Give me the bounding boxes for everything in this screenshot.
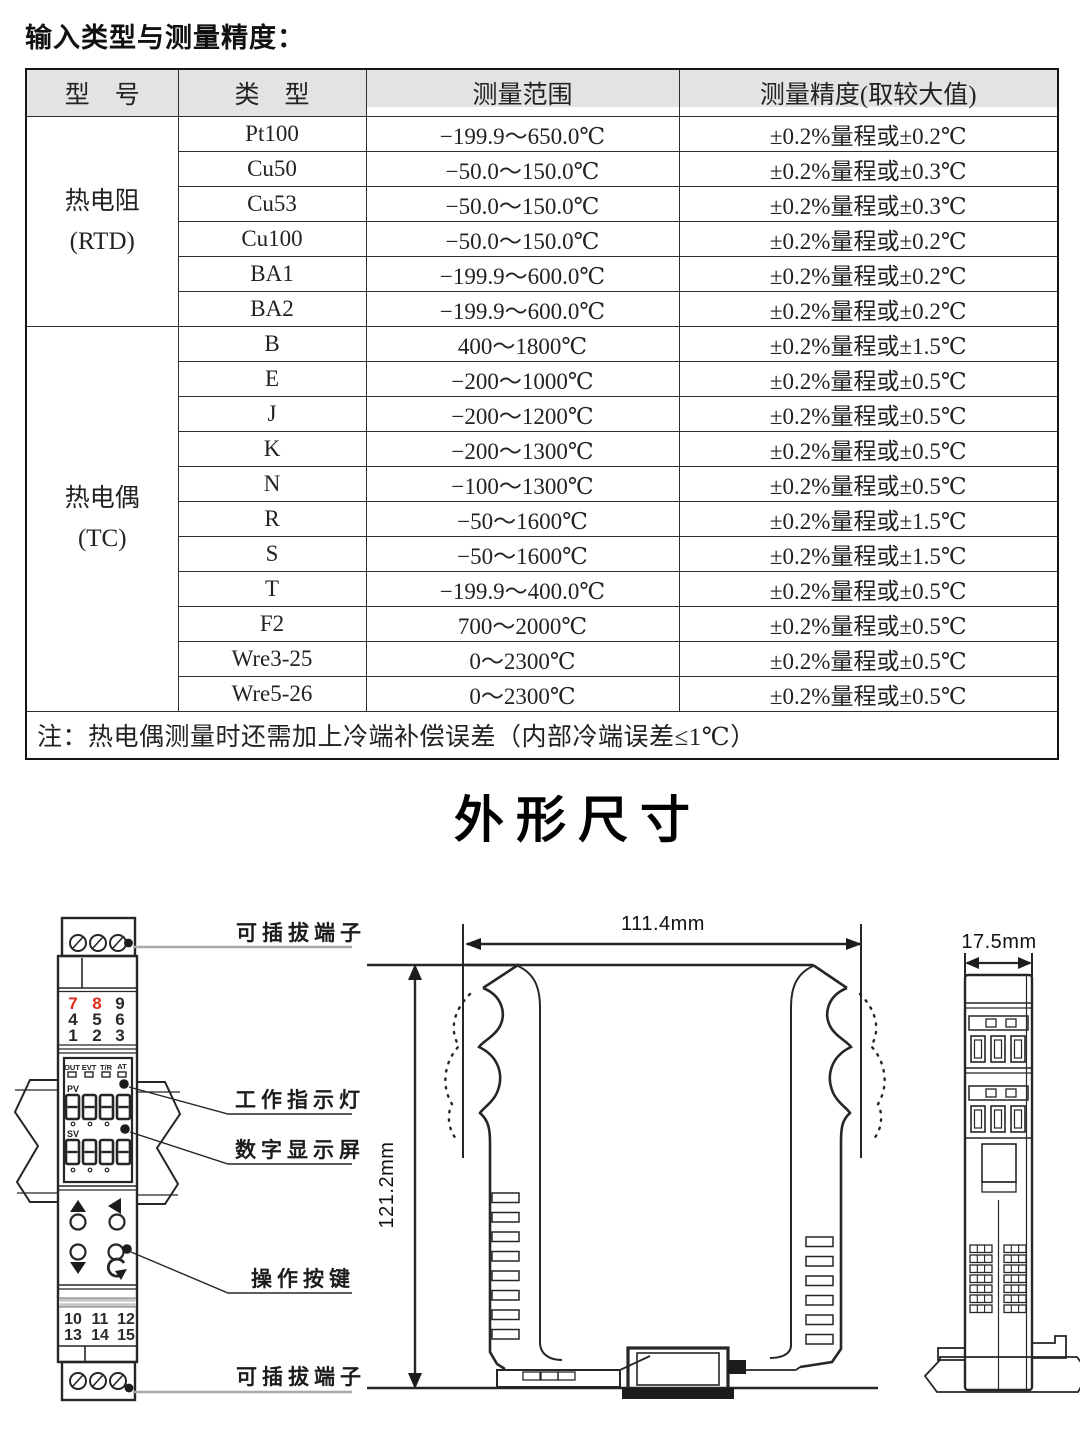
side-view-drawing: 17.5mm bbox=[925, 931, 1080, 1392]
down-button bbox=[71, 1245, 86, 1260]
indicator-label: EVT bbox=[82, 1063, 97, 1072]
accuracy-cell: ±0.2%量程或±0.2℃ bbox=[679, 117, 1058, 152]
table-row: Cu100−50.0～150.0℃±0.2%量程或±0.2℃ bbox=[26, 222, 1058, 257]
accuracy-cell: ±0.2%量程或±0.5℃ bbox=[679, 362, 1058, 397]
terminal-number: 12 bbox=[117, 1311, 135, 1328]
side-terminal-upper bbox=[965, 1016, 1032, 1073]
table-row: Cu50−50.0～150.0℃±0.2%量程或±0.3℃ bbox=[26, 152, 1058, 187]
indicator-lamp bbox=[68, 1072, 76, 1077]
type-cell: R bbox=[178, 502, 366, 537]
range-cell: −100～1300℃ bbox=[366, 467, 679, 502]
indicator-lamp bbox=[102, 1072, 110, 1077]
outline-section-heading: 外形尺寸 bbox=[38, 780, 1080, 852]
outline-drawings: 7 8 9 4 5 6 1 2 3 OUT EVT T/R AT bbox=[0, 900, 1080, 1453]
range-cell: −199.9～650.0℃ bbox=[366, 117, 679, 152]
type-cell: Wre3-25 bbox=[178, 642, 366, 677]
terminal-number: 15 bbox=[117, 1327, 135, 1344]
terminal-number: 11 bbox=[92, 1311, 109, 1328]
callout-top-terminal: 可插拔端子 bbox=[236, 921, 366, 945]
callout-anchor-dot bbox=[124, 939, 133, 948]
din-rail-right bbox=[137, 1082, 180, 1204]
accuracy-cell: ±0.2%量程或±0.5℃ bbox=[679, 677, 1058, 712]
up-button bbox=[71, 1215, 86, 1230]
terminal-number: 2 bbox=[92, 1026, 101, 1045]
page-title: 输入类型与测量精度： bbox=[25, 16, 305, 55]
range-cell: −50.0～150.0℃ bbox=[366, 222, 679, 257]
enter-button bbox=[109, 1245, 124, 1260]
range-cell: −200～1000℃ bbox=[366, 362, 679, 397]
din-rail-left bbox=[15, 1080, 58, 1202]
din-rail-section bbox=[925, 1357, 1080, 1392]
table-row: E−200～1000℃±0.2%量程或±0.5℃ bbox=[26, 362, 1058, 397]
table-row: S−50～1600℃±0.2%量程或±1.5℃ bbox=[26, 537, 1058, 572]
range-cell: −199.9～600.0℃ bbox=[366, 257, 679, 292]
header-model: 型 号 bbox=[26, 69, 178, 117]
type-cell: BA2 bbox=[178, 292, 366, 327]
table-row: Cu53−50.0～150.0℃±0.2%量程或±0.3℃ bbox=[26, 187, 1058, 222]
top-view-drawing: 111.4mm 121.2mm bbox=[367, 913, 885, 1399]
accuracy-cell: ±0.2%量程或±0.2℃ bbox=[679, 292, 1058, 327]
left-arrow-icon bbox=[108, 1198, 121, 1214]
table-note: 注：热电偶测量时还需加上冷端补偿误差（内部冷端误差≤1℃） bbox=[26, 712, 1058, 760]
table-row: BA1−199.9～600.0℃±0.2%量程或±0.2℃ bbox=[26, 257, 1058, 292]
vent-slats-right bbox=[806, 1237, 833, 1344]
spec-table-wrap: 型 号 类 型 测量范围 测量精度(取较大值) 热电阻(RTD)Pt100−19… bbox=[25, 68, 1059, 760]
type-cell: Wre5-26 bbox=[178, 677, 366, 712]
sv-digits bbox=[66, 1140, 130, 1164]
accuracy-cell: ±0.2%量程或±0.2℃ bbox=[679, 257, 1058, 292]
accuracy-cell: ±0.2%量程或±0.5℃ bbox=[679, 467, 1058, 502]
left-button bbox=[110, 1215, 125, 1230]
table-row: 热电偶(TC)B400～1800℃±0.2%量程或±1.5℃ bbox=[26, 327, 1058, 362]
terminal-number: 13 bbox=[64, 1327, 82, 1344]
range-cell: −50.0～150.0℃ bbox=[366, 152, 679, 187]
type-cell: Cu50 bbox=[178, 152, 366, 187]
swing-arc-dotted bbox=[860, 994, 885, 1141]
header-accuracy: 测量精度(取较大值) bbox=[679, 69, 1058, 117]
terminal-number: 3 bbox=[115, 1026, 124, 1045]
range-cell: 400～1800℃ bbox=[366, 327, 679, 362]
top-terminal-block bbox=[62, 918, 135, 956]
type-cell: Cu100 bbox=[178, 222, 366, 257]
front-view-drawing: 7 8 9 4 5 6 1 2 3 OUT EVT T/R AT bbox=[15, 918, 366, 1400]
range-cell: −50～1600℃ bbox=[366, 502, 679, 537]
range-cell: −200～1300℃ bbox=[366, 432, 679, 467]
range-cell: −200～1200℃ bbox=[366, 397, 679, 432]
accuracy-cell: ±0.2%量程或±1.5℃ bbox=[679, 502, 1058, 537]
button-panel bbox=[58, 1186, 137, 1289]
table-row: T−199.9～400.0℃±0.2%量程或±0.5℃ bbox=[26, 572, 1058, 607]
table-row: BA2−199.9～600.0℃±0.2%量程或±0.2℃ bbox=[26, 292, 1058, 327]
table-row: N−100～1300℃±0.2%量程或±0.5℃ bbox=[26, 467, 1058, 502]
spec-table-body: 热电阻(RTD)Pt100−199.9～650.0℃±0.2%量程或±0.2℃C… bbox=[26, 117, 1058, 760]
range-cell: −50.0～150.0℃ bbox=[366, 187, 679, 222]
right-clip-profile bbox=[800, 988, 851, 1367]
table-row: K−200～1300℃±0.2%量程或±0.5℃ bbox=[26, 432, 1058, 467]
terminal-number: 1 bbox=[68, 1026, 77, 1045]
table-row: J−200～1200℃±0.2%量程或±0.5℃ bbox=[26, 397, 1058, 432]
accuracy-cell: ±0.2%量程或±0.5℃ bbox=[679, 642, 1058, 677]
swing-arc-dotted bbox=[445, 994, 470, 1141]
indicator-lamp bbox=[118, 1072, 126, 1077]
terminal-number: 10 bbox=[64, 1311, 82, 1328]
callout-bottom-terminal: 可插拔端子 bbox=[236, 1365, 366, 1389]
type-cell: N bbox=[178, 467, 366, 502]
accuracy-cell: ±0.2%量程或±0.2℃ bbox=[679, 222, 1058, 257]
down-arrow-icon bbox=[70, 1262, 86, 1274]
indicator-label: T/R bbox=[100, 1063, 113, 1072]
callout-display: 数字显示屏 bbox=[235, 1138, 365, 1162]
accuracy-cell: ±0.2%量程或±1.5℃ bbox=[679, 327, 1058, 362]
table-row: 热电阻(RTD)Pt100−199.9～650.0℃±0.2%量程或±0.2℃ bbox=[26, 117, 1058, 152]
range-cell: 700～2000℃ bbox=[366, 607, 679, 642]
type-cell: K bbox=[178, 432, 366, 467]
table-row: F2700～2000℃±0.2%量程或±0.5℃ bbox=[26, 607, 1058, 642]
type-cell: E bbox=[178, 362, 366, 397]
range-cell: −50～1600℃ bbox=[366, 537, 679, 572]
display-panel: OUT EVT T/R AT PV SV bbox=[64, 1058, 132, 1182]
range-cell: 0～2300℃ bbox=[366, 677, 679, 712]
top-terminal-numbers: 7 8 9 4 5 6 1 2 3 bbox=[68, 994, 124, 1045]
model-cell: 热电阻(RTD) bbox=[26, 117, 178, 327]
table-row: Wre3-250～2300℃±0.2%量程或±0.5℃ bbox=[26, 642, 1058, 677]
side-clamp bbox=[982, 1144, 1016, 1182]
bottom-terminal-block bbox=[62, 1362, 135, 1400]
callout-indicator: 工作指示灯 bbox=[235, 1088, 365, 1112]
accuracy-cell: ±0.2%量程或±0.5℃ bbox=[679, 397, 1058, 432]
bottom-terminal-numbers: 10 11 12 13 14 15 bbox=[64, 1311, 135, 1344]
loop-arrowhead-icon bbox=[115, 1269, 127, 1280]
depth-dimension-label: 17.5mm bbox=[961, 931, 1036, 953]
type-cell: Cu53 bbox=[178, 187, 366, 222]
width-dimension-label: 111.4mm bbox=[621, 913, 705, 935]
callout-anchor-dot bbox=[125, 1384, 134, 1393]
accuracy-cell: ±0.2%量程或±0.5℃ bbox=[679, 572, 1058, 607]
sv-label: SV bbox=[67, 1129, 79, 1139]
callout-buttons: 操作按键 bbox=[251, 1267, 355, 1291]
callout-anchor-dot bbox=[122, 1244, 132, 1254]
range-cell: −199.9～400.0℃ bbox=[366, 572, 679, 607]
range-cell: −199.9～600.0℃ bbox=[366, 292, 679, 327]
type-cell: J bbox=[178, 397, 366, 432]
header-row: 型 号 类 型 测量范围 测量精度(取较大值) bbox=[26, 69, 1058, 117]
indicator-label: AT bbox=[117, 1062, 127, 1071]
accuracy-cell: ±0.2%量程或±0.5℃ bbox=[679, 607, 1058, 642]
type-cell: BA1 bbox=[178, 257, 366, 292]
height-dimension-label: 121.2mm bbox=[376, 1142, 398, 1229]
indicator-label: OUT bbox=[64, 1063, 80, 1072]
terminal-number: 14 bbox=[91, 1327, 109, 1344]
type-cell: F2 bbox=[178, 607, 366, 642]
vent-slats-left bbox=[492, 1193, 519, 1339]
type-cell: S bbox=[178, 537, 366, 572]
header-type: 类 型 bbox=[178, 69, 366, 117]
note-row: 注：热电偶测量时还需加上冷端补偿误差（内部冷端误差≤1℃） bbox=[26, 712, 1058, 760]
pv-label: PV bbox=[67, 1084, 79, 1094]
table-row: R−50～1600℃±0.2%量程或±1.5℃ bbox=[26, 502, 1058, 537]
callout-anchor-dot bbox=[120, 1124, 130, 1134]
range-cell: 0～2300℃ bbox=[366, 642, 679, 677]
type-cell: B bbox=[178, 327, 366, 362]
side-terminal-lower bbox=[965, 1086, 1032, 1138]
callout-anchor-dot bbox=[119, 1079, 129, 1089]
spec-table: 型 号 类 型 测量范围 测量精度(取较大值) 热电阻(RTD)Pt100−19… bbox=[25, 68, 1059, 760]
table-row: Wre5-260～2300℃±0.2%量程或±0.5℃ bbox=[26, 677, 1058, 712]
accuracy-cell: ±0.2%量程或±0.5℃ bbox=[679, 432, 1058, 467]
accuracy-cell: ±0.2%量程或±0.3℃ bbox=[679, 152, 1058, 187]
header-range: 测量范围 bbox=[366, 69, 679, 117]
type-cell: Pt100 bbox=[178, 117, 366, 152]
pv-digits bbox=[66, 1095, 130, 1119]
accuracy-cell: ±0.2%量程或±0.3℃ bbox=[679, 187, 1058, 222]
type-cell: T bbox=[178, 572, 366, 607]
indicator-lamp bbox=[85, 1072, 93, 1077]
model-cell: 热电偶(TC) bbox=[26, 327, 178, 712]
up-arrow-icon bbox=[70, 1200, 86, 1212]
accuracy-cell: ±0.2%量程或±1.5℃ bbox=[679, 537, 1058, 572]
